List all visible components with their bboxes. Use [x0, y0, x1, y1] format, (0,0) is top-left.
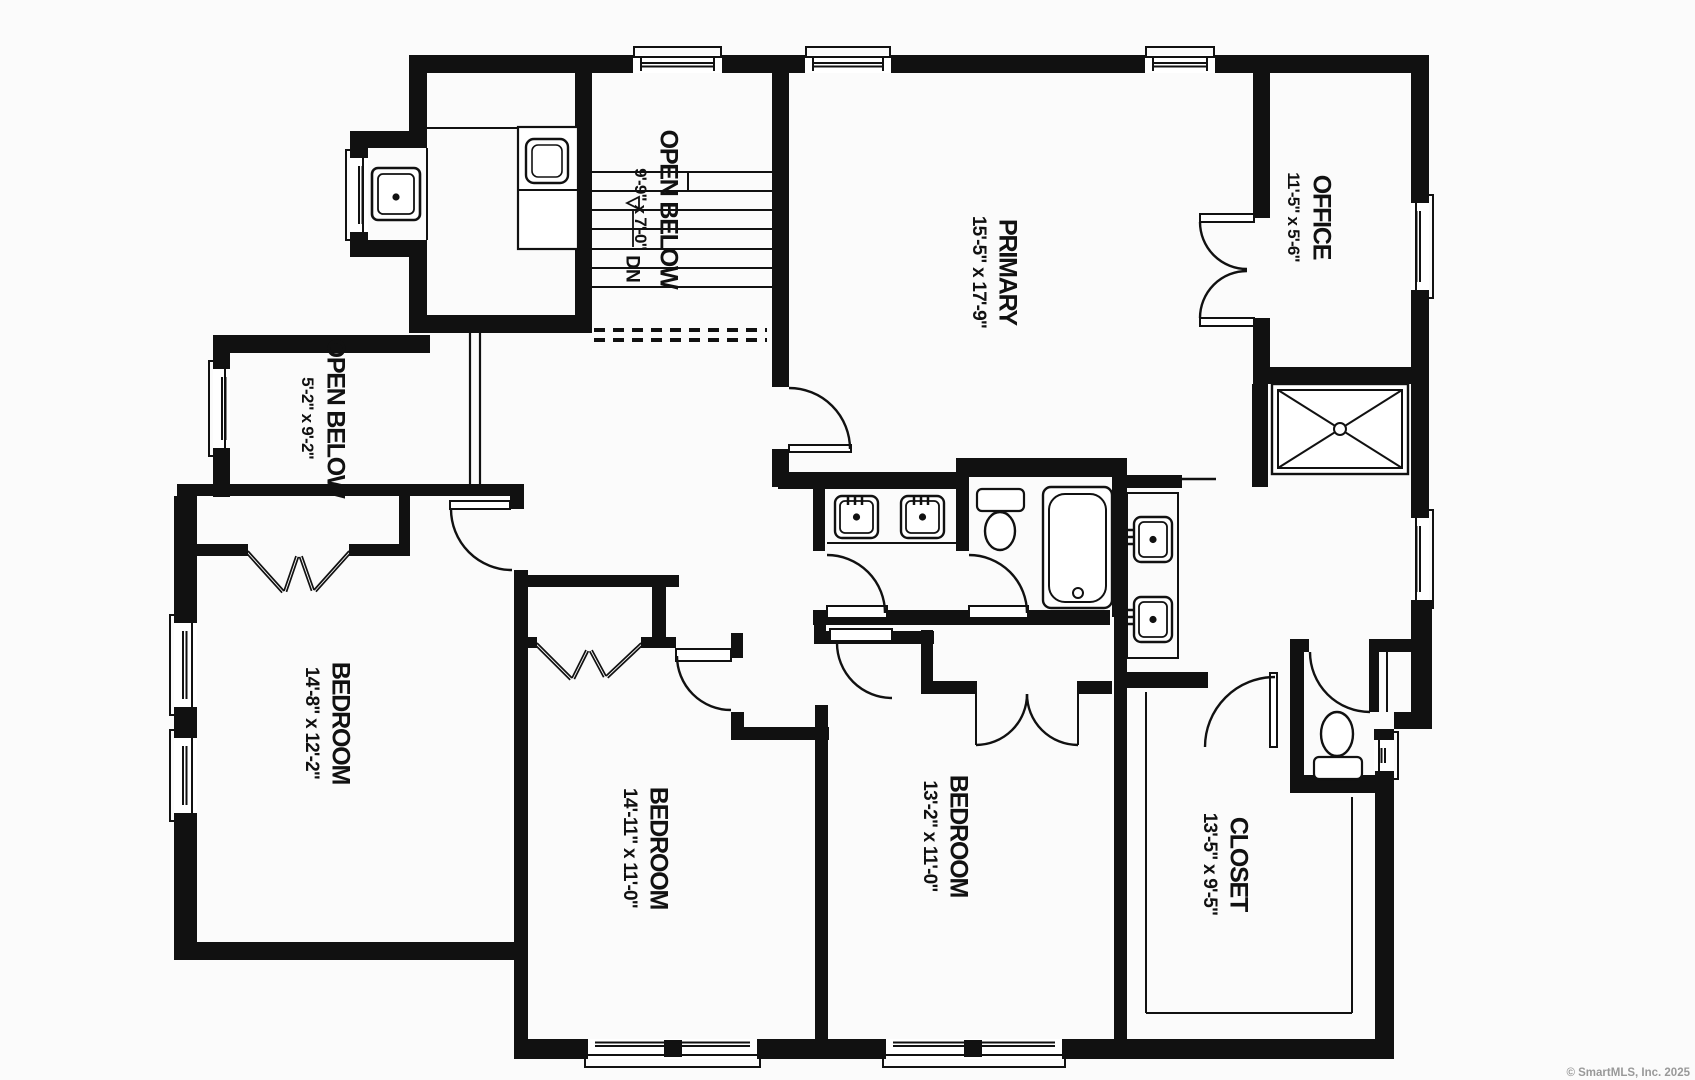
svg-text:© SmartMLS, Inc. 2025: © SmartMLS, Inc. 2025 [1566, 1067, 1690, 1079]
svg-text:13'-2" x 11'-0": 13'-2" x 11'-0" [919, 780, 940, 891]
svg-text:CLOSET: CLOSET [1225, 817, 1253, 912]
svg-text:PRIMARY: PRIMARY [994, 219, 1022, 326]
svg-text:OFFICE: OFFICE [1308, 175, 1336, 260]
svg-text:OPEN BELOW: OPEN BELOW [322, 339, 350, 499]
svg-text:11'-5" x 5'-6": 11'-5" x 5'-6" [1284, 172, 1303, 262]
svg-text:15'-5" x 17'-9": 15'-5" x 17'-9" [968, 216, 989, 328]
svg-text:BEDROOM: BEDROOM [945, 775, 973, 898]
svg-text:DN: DN [621, 255, 642, 282]
svg-text:BEDROOM: BEDROOM [327, 662, 355, 785]
svg-text:OPEN BELOW: OPEN BELOW [655, 130, 683, 290]
svg-text:9'-9" x 7'-0": 9'-9" x 7'-0" [631, 168, 650, 250]
svg-text:5'-2" x 9'-2": 5'-2" x 9'-2" [298, 377, 317, 459]
svg-text:14'-8" x 12'-2": 14'-8" x 12'-2" [301, 667, 322, 779]
svg-text:BEDROOM: BEDROOM [645, 787, 673, 910]
svg-text:13'-5" x 9'-5": 13'-5" x 9'-5" [1199, 813, 1220, 915]
svg-text:14'-11" x 11'-0": 14'-11" x 11'-0" [619, 788, 640, 908]
